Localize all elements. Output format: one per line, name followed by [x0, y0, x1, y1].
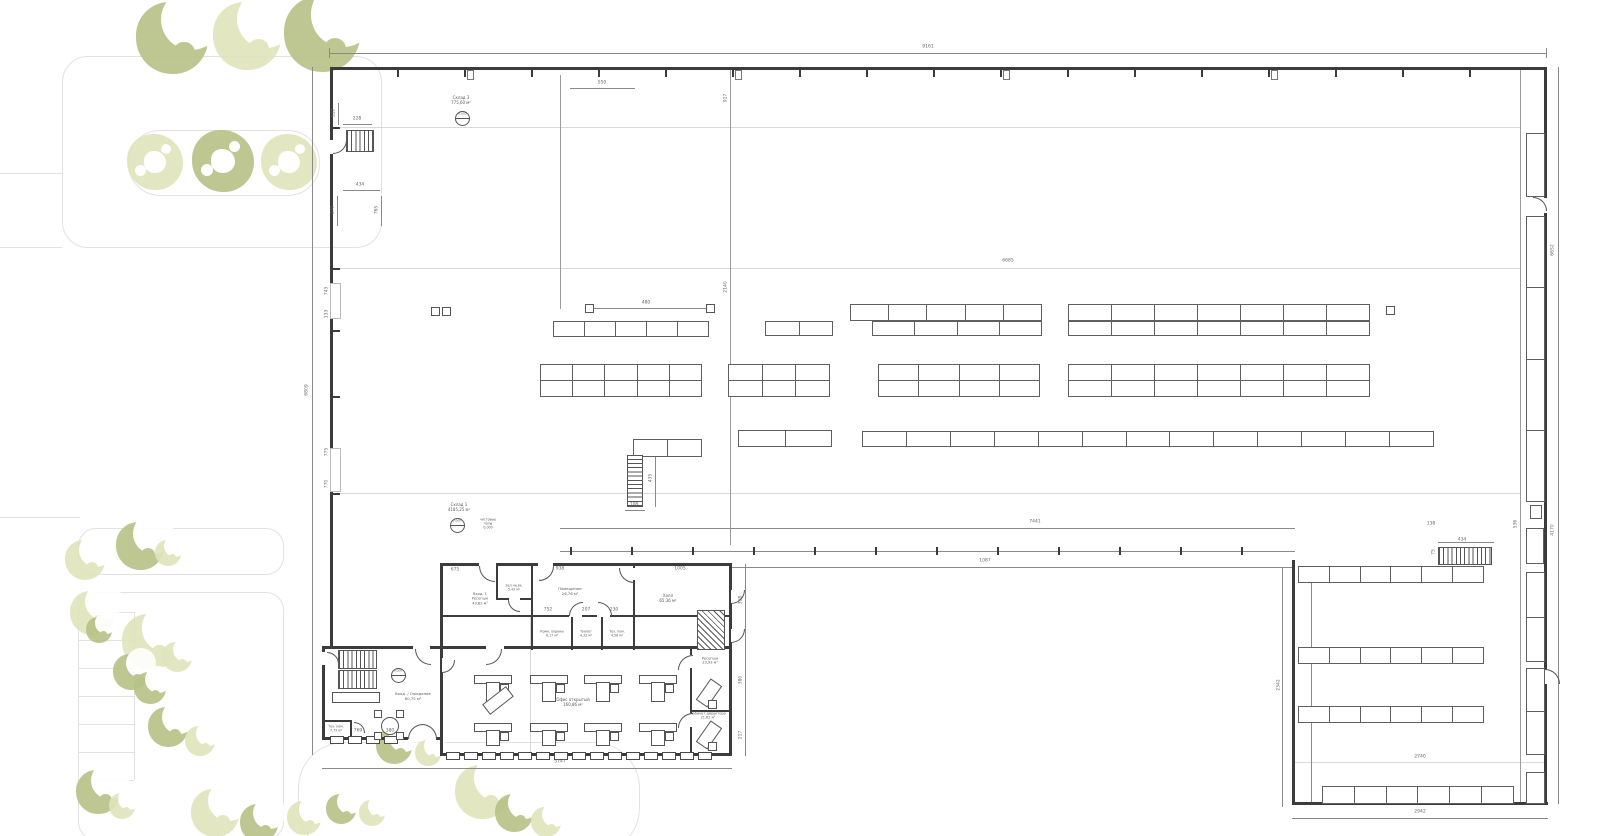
wall-niche [330, 448, 341, 492]
wall [322, 646, 413, 649]
window [590, 752, 604, 760]
wall [601, 617, 603, 650]
dimension-label: 550 [598, 80, 607, 86]
table-chair [396, 732, 404, 740]
staircase [1438, 547, 1492, 565]
rack-cell [1299, 567, 1330, 582]
rack-cell [678, 322, 708, 336]
column-tick [598, 70, 600, 77]
column-marker [706, 304, 715, 313]
dimension-label: 6809 [304, 384, 310, 395]
rack-cell [1112, 381, 1155, 396]
window [464, 752, 478, 760]
tree [192, 130, 254, 192]
staircase [338, 650, 377, 669]
dimension-label: 765 [374, 206, 380, 215]
site-line [0, 517, 80, 518]
column-marker [1386, 306, 1395, 315]
column-tick [799, 70, 801, 77]
tree [284, 0, 360, 72]
rack-cell [1391, 707, 1422, 722]
tree-canopy-notch [542, 802, 568, 828]
dimension-line [1546, 48, 1547, 58]
rack-cell [1083, 432, 1127, 446]
room-label: Туалет 4,32 м² [580, 630, 592, 638]
rack-cell [1527, 669, 1544, 712]
rack-cell [1527, 288, 1544, 359]
storage-rack [1526, 528, 1544, 564]
door-swing-arc [508, 600, 520, 612]
tree [148, 707, 188, 747]
rack-cell [1198, 322, 1241, 335]
storage-rack [850, 304, 1042, 321]
rack-cell [573, 365, 605, 380]
grid-line [730, 67, 731, 545]
tree [415, 740, 441, 766]
door-swing-arc [415, 649, 431, 665]
rack-cell [585, 322, 616, 336]
window [482, 752, 496, 760]
storage-rack [1322, 786, 1514, 804]
storage-rack [1298, 706, 1484, 723]
tree-canopy-clump [216, 815, 230, 829]
dimension-line [560, 528, 1295, 529]
rack-cell [1422, 707, 1453, 722]
office-chair [708, 700, 717, 709]
column-flag [467, 70, 474, 80]
door-swing-arc [422, 724, 437, 739]
grid-line [332, 268, 1520, 269]
rack-cell [1284, 305, 1327, 320]
office-chair [610, 732, 619, 741]
column-flag [1003, 70, 1010, 80]
rack-cell [763, 365, 797, 380]
tree [240, 804, 278, 836]
rack-cell [1346, 432, 1390, 446]
rack-cell [1170, 432, 1214, 446]
tree-canopy-clump [86, 562, 98, 574]
tree-canopy-clump [173, 42, 195, 64]
dimension-line [312, 67, 313, 755]
rack-cell [796, 365, 829, 380]
rack-cell [634, 440, 668, 456]
dimension-line [655, 453, 656, 507]
tree-canopy-clump [248, 39, 268, 59]
column-tick [1067, 70, 1069, 77]
rack-cell [1155, 322, 1198, 335]
staircase [346, 130, 374, 152]
storage-rack [878, 380, 1040, 397]
rack-cell [1112, 322, 1155, 335]
dimension-label: 270 [330, 206, 336, 215]
rack-cell [960, 381, 1000, 396]
dimension-line [570, 88, 635, 89]
rack-cell [1390, 432, 1433, 446]
rack-cell [766, 322, 800, 335]
grid-line [1520, 67, 1521, 804]
column-tick [1180, 547, 1182, 555]
storage-rack [1526, 216, 1545, 502]
storage-rack [765, 321, 833, 336]
dimension-line [337, 196, 338, 226]
dimension-label: 775 [324, 448, 330, 457]
dimension-label: 917 [723, 94, 729, 103]
dimension-label: 228 [353, 116, 362, 122]
floor-plan-canvas: -0,0500,0000,000Склад 3 775,60 м²Склад 1… [0, 0, 1600, 836]
rack-cell [1327, 381, 1369, 396]
dimension-line [329, 48, 330, 58]
dimension-line [338, 103, 339, 125]
rack-cell [879, 381, 919, 396]
rack-cell [960, 365, 1000, 380]
rack-cell [1361, 567, 1392, 582]
window [348, 736, 362, 744]
rack-cell [863, 432, 907, 446]
window [500, 752, 514, 760]
site-line [78, 696, 134, 697]
door-swing-arc [678, 655, 693, 670]
rack-cell [1527, 360, 1544, 431]
rack-cell [763, 381, 797, 396]
rack-cell [1482, 787, 1513, 803]
elevation-value: 0,000 [394, 670, 402, 674]
tree-canopy-clump [547, 824, 556, 833]
rack-cell [1387, 787, 1419, 803]
tree [191, 789, 239, 836]
rack-cell [800, 322, 833, 335]
column-tick [1241, 547, 1243, 555]
room-label: Вход. / Ожидание 80,75 м² [395, 692, 431, 701]
storage-rack [1068, 364, 1370, 381]
window [518, 752, 532, 760]
elevation-marker-line [392, 675, 405, 676]
grid-line [1295, 762, 1545, 763]
rack-cell [1198, 381, 1241, 396]
office-chair [556, 684, 565, 693]
column-tick [732, 70, 734, 77]
rack-cell [1155, 381, 1198, 396]
rack-cell [616, 322, 647, 336]
column-tick [1335, 70, 1337, 77]
office-chair [665, 732, 674, 741]
rack-cell [1327, 365, 1369, 380]
site-line [0, 247, 62, 248]
tree-canopy-clump [305, 820, 315, 830]
column-tick [333, 268, 340, 270]
storage-rack [1068, 321, 1370, 336]
rack-cell [605, 365, 637, 380]
dimension-line [343, 124, 372, 125]
tree-canopy-core [278, 151, 300, 173]
tree-canopy-notch [196, 721, 222, 747]
room-label: Склад 1 4185,25 м² [448, 503, 470, 513]
desk-return [486, 730, 500, 746]
tree [213, 2, 281, 70]
storage-rack [1068, 380, 1370, 397]
dimension-label: 75 [1431, 549, 1437, 555]
wall [330, 67, 333, 649]
dimension-label: 217 [738, 731, 744, 740]
tree [65, 540, 105, 580]
rack-cell [1527, 712, 1544, 754]
tree-canopy-gap1 [269, 165, 280, 176]
dimension-label: 207 [582, 607, 591, 613]
storage-rack [1526, 772, 1545, 804]
column-tick [631, 547, 633, 555]
dimension-label: 480 [642, 300, 651, 306]
rack-cell [1422, 648, 1453, 663]
room-label: Тех. пом. 7,73 м² [328, 725, 344, 733]
tree-canopy-notch [299, 795, 328, 824]
window [680, 752, 694, 760]
column-tick [875, 547, 877, 555]
wall [496, 566, 498, 600]
dimension-label: 1005 [674, 566, 685, 572]
dimension-line [322, 768, 732, 769]
office-chair [708, 742, 717, 751]
dimension-label: 6652 [1550, 244, 1556, 255]
tree [185, 726, 215, 756]
tree [261, 134, 317, 190]
wall [322, 720, 352, 722]
window [330, 736, 344, 744]
door-swing-arc [731, 629, 745, 643]
window [644, 752, 658, 760]
rack-cell [670, 365, 701, 380]
column-marker [442, 307, 451, 316]
dimension-label: 536 [1513, 520, 1519, 529]
rack-cell [1391, 567, 1422, 582]
dimension-label: 434 [356, 182, 365, 188]
rack-cell [739, 431, 786, 446]
room-label: Ресепшн 23,93 м² [702, 657, 719, 666]
dimension-label: 9161 [922, 44, 933, 50]
dimension-label: 434 [1458, 537, 1467, 543]
rack-cell [1000, 365, 1039, 380]
rack-cell [638, 365, 670, 380]
column-tick [570, 547, 572, 555]
desk-return [651, 682, 665, 702]
dimension-label: 2140 [723, 281, 729, 292]
rack-cell [1299, 648, 1330, 663]
dimension-line [381, 196, 382, 226]
column-marker [585, 304, 594, 313]
desk-return [596, 730, 610, 746]
dimension-label: 133 [324, 310, 330, 319]
dimension-label: 675 [451, 567, 460, 573]
dimension-label: 743 [324, 287, 330, 296]
rack-cell [919, 381, 959, 396]
rack-cell [1039, 432, 1083, 446]
rack-cell [786, 431, 832, 446]
rack-cell [1391, 648, 1422, 663]
rack-cell [1527, 431, 1544, 501]
dimension-label: 5747 [554, 759, 565, 765]
rack-cell [1299, 707, 1330, 722]
wall [571, 617, 573, 650]
rack-cell [1355, 787, 1387, 803]
tree-canopy-notch [79, 533, 113, 567]
rack-cell [1004, 305, 1041, 320]
staircase [627, 455, 643, 507]
dimension-label: 380 [386, 728, 395, 734]
rack-cell [1198, 305, 1241, 320]
dimension-label: 7441 [1029, 519, 1040, 525]
column-tick [1268, 70, 1270, 77]
tree [531, 807, 561, 836]
elevation-marker: 0,000 [391, 668, 406, 683]
column-tick [753, 547, 755, 555]
site-line [78, 752, 134, 753]
rack-cell [1422, 567, 1453, 582]
tree [134, 672, 166, 704]
office-chair [500, 732, 509, 741]
rack-cell [541, 365, 573, 380]
window [698, 752, 712, 760]
rack-cell [1000, 381, 1039, 396]
rack-cell [927, 305, 965, 320]
window [536, 752, 550, 760]
storage-rack [738, 430, 832, 447]
rack-cell [966, 305, 1004, 320]
dimension-line [1558, 67, 1559, 804]
dimension-label: 4170 [1550, 524, 1556, 535]
window [662, 752, 676, 760]
rack-cell [1069, 381, 1112, 396]
dimension-label: 138 [1427, 521, 1436, 527]
staircase [697, 610, 725, 650]
dimension-label: 6685 [1002, 258, 1013, 264]
column-tick [1201, 70, 1203, 77]
dimension-label: 380 [738, 676, 744, 685]
rack-cell [729, 365, 763, 380]
wall-niche [330, 283, 341, 319]
column-flag [735, 70, 742, 80]
dimension-line [1292, 818, 1548, 819]
dimension-label: 435 [648, 474, 654, 483]
elevation-marker: -0,050 [455, 111, 470, 126]
storage-rack [1526, 572, 1545, 662]
rack-cell [1241, 305, 1284, 320]
storage-rack [633, 439, 702, 457]
rack-cell [1258, 432, 1302, 446]
window [626, 752, 640, 760]
rack-cell [729, 381, 763, 396]
rack-cell [1284, 365, 1327, 380]
tree-canopy-clump [342, 811, 351, 820]
dimension-label: 108 [630, 502, 639, 508]
rack-cell [605, 381, 637, 396]
tree-canopy-clump [395, 748, 406, 759]
tree-canopy-clump [324, 38, 347, 61]
rack-cell [1527, 134, 1544, 196]
rack-cell [1112, 305, 1155, 320]
window [446, 752, 460, 760]
grid-line [332, 127, 1520, 128]
elevation-marker-line [451, 525, 464, 526]
storage-rack [872, 321, 1042, 336]
dimension-line [1282, 567, 1283, 807]
tree [287, 801, 321, 835]
rack-cell [573, 381, 605, 396]
column-flag [1271, 70, 1278, 80]
table-chair [396, 710, 404, 718]
door-swing-arc [442, 660, 455, 673]
wall [442, 615, 730, 617]
dimension-label: 230 [610, 607, 619, 613]
rack-cell [1361, 648, 1392, 663]
tree [127, 134, 183, 190]
grid-line [332, 493, 1520, 494]
dimension-label: 770 [324, 480, 330, 489]
rack-cell [541, 381, 573, 396]
room-label: Тех. пом. 4,58 м² [609, 630, 625, 638]
tree [162, 642, 192, 672]
dimension-label: 1087 [979, 558, 990, 564]
tree [155, 540, 181, 566]
rack-cell [1284, 381, 1327, 396]
room-label: Комн. охраны 6,17 м² [540, 630, 564, 638]
door-swing-arc [619, 568, 634, 583]
dimension-line [330, 53, 1547, 54]
rack-cell [951, 432, 995, 446]
door-swing-arc [539, 566, 554, 581]
tree-canopy-clump [260, 825, 271, 836]
dimension-label: 510 [331, 109, 337, 118]
rack-cell [1531, 506, 1541, 518]
rack-cell [851, 305, 889, 320]
dimension-label: 2342 [1276, 679, 1282, 690]
tree [136, 2, 208, 74]
column-tick [1000, 70, 1002, 77]
room-label: Помещение 26,76 м² [558, 587, 581, 596]
column-tick [397, 70, 399, 77]
column-tick [333, 493, 340, 495]
storage-rack [728, 364, 830, 381]
rack-cell [1453, 648, 1483, 663]
column-tick [333, 127, 340, 129]
dimension-line [625, 510, 645, 511]
wall [330, 67, 1547, 70]
storage-rack [878, 364, 1040, 381]
rack-cell [1069, 305, 1112, 320]
rack-cell [1302, 432, 1346, 446]
rack-cell [554, 322, 585, 336]
rack-cell [889, 305, 927, 320]
column-marker [431, 307, 440, 316]
dimension-line [1311, 570, 1312, 803]
tree [86, 617, 112, 643]
storage-rack [1298, 647, 1484, 664]
dimension-label: 2740 [1414, 754, 1425, 760]
dimension-line [745, 564, 746, 756]
wall [1292, 560, 1295, 804]
desk-return [542, 682, 556, 702]
rack-cell [1069, 365, 1112, 380]
tree-canopy-notch [253, 797, 285, 829]
storage-rack [862, 431, 1434, 447]
rack-cell [1527, 618, 1544, 662]
room-label: Холл 65,36 м² [659, 594, 676, 604]
rack-cell [1127, 432, 1171, 446]
column-tick [1119, 547, 1121, 555]
tree [109, 793, 135, 819]
storage-rack [1530, 505, 1542, 519]
rack-cell [1327, 322, 1369, 335]
rack-cell [1330, 567, 1361, 582]
column-tick [665, 70, 667, 77]
office-chair [665, 684, 674, 693]
